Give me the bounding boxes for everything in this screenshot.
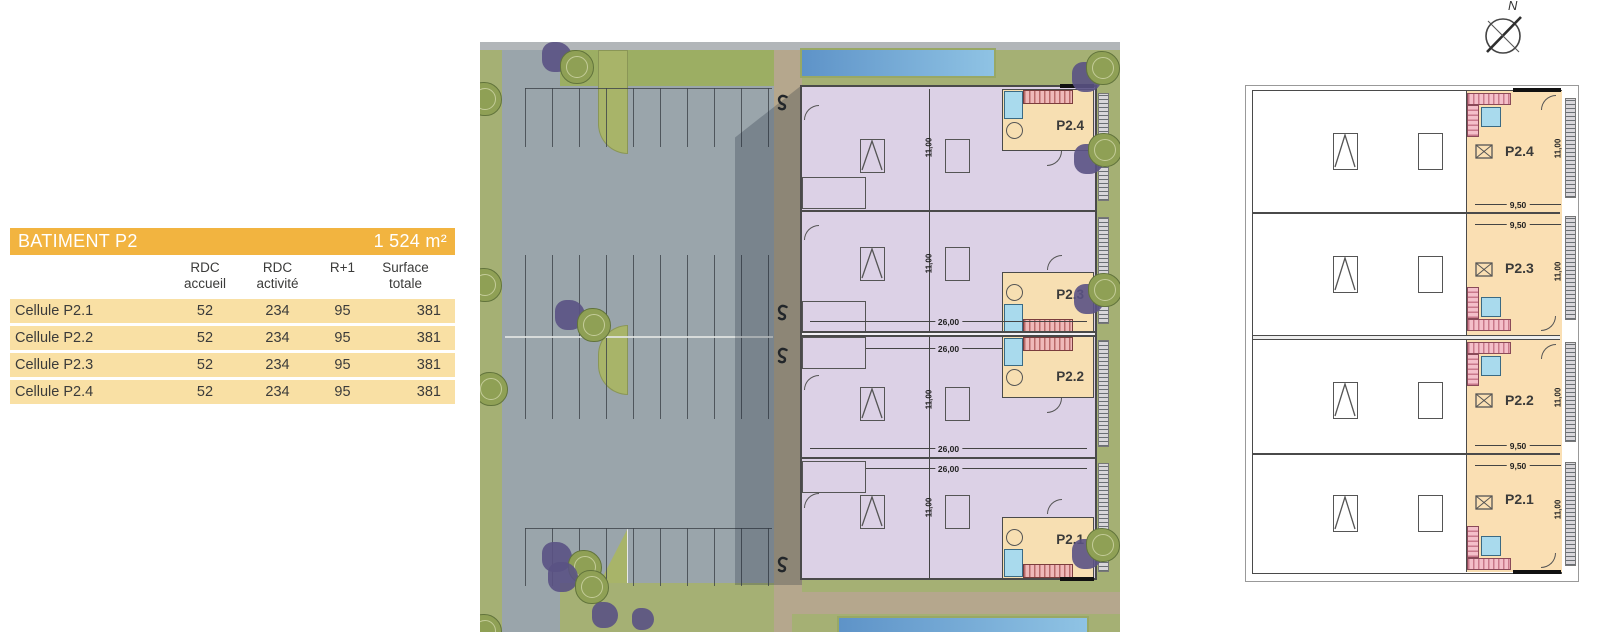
cell-value: 95 (315, 303, 370, 319)
tree-icon (1088, 133, 1120, 167)
staircase (1467, 526, 1515, 570)
louver-strip (1565, 462, 1576, 566)
tree-icon (1086, 528, 1120, 562)
r1-cell-p21: P2.1 11,00 (1253, 455, 1560, 572)
tree-icon (1086, 51, 1120, 85)
total-area: 1 524 m² (374, 231, 447, 252)
wall-segment (1060, 577, 1094, 581)
cell-value: 234 (240, 330, 315, 346)
dimension-label: 11,00 (925, 491, 934, 525)
cell-label: P2.2 (1056, 369, 1084, 384)
sanitary-block (1004, 91, 1023, 119)
dimension-label: 11,00 (1554, 132, 1563, 166)
cell-value: 381 (370, 357, 455, 373)
roof-vent-symbol (860, 387, 885, 421)
dimension-label: 26,00 (935, 317, 962, 327)
tree-icon (577, 308, 611, 342)
sanitary-block (1004, 304, 1023, 332)
cell-value: 381 (370, 384, 455, 400)
skylight-symbol (1418, 133, 1443, 170)
row-label: Cellule P2.3 (10, 357, 170, 373)
north-label: N (1508, 0, 1517, 13)
door-arc (804, 493, 819, 508)
site-cell-p24: 11,00 P2.4 (802, 87, 1095, 211)
site-plan: 11,00 P2.4 11,00 (480, 42, 1120, 632)
door-pictogram (776, 556, 789, 573)
door-arc (1047, 151, 1062, 166)
roof-vent-symbol (860, 139, 885, 173)
dimension-label: 9,50 (1507, 200, 1530, 210)
hatch-symbol (1475, 262, 1493, 277)
spiral-stair (1006, 369, 1023, 386)
skylight-symbol (945, 495, 970, 529)
vestibule-outline (802, 461, 866, 493)
roof-vent-symbol (1333, 382, 1358, 419)
staircase (1023, 337, 1073, 351)
table-column-headers: RDC accueil RDC activité R+1 Surface tot… (10, 255, 455, 296)
dimension-line: 9,50 (1475, 445, 1561, 446)
building-shadow (735, 85, 802, 585)
spiral-stair (1006, 529, 1023, 546)
staircase (1467, 342, 1515, 386)
staircase (1467, 287, 1515, 331)
hatch-symbol (1475, 495, 1493, 510)
accueil-room: P2.2 (1002, 336, 1094, 398)
vestibule-outline (802, 301, 866, 333)
skylight-symbol (945, 139, 970, 173)
cell-value: 381 (370, 303, 455, 319)
building-p2-ground-floor: 11,00 P2.4 11,00 (800, 85, 1097, 580)
spiral-stair (1006, 284, 1023, 301)
cell-value: 52 (170, 357, 240, 373)
staircase (1023, 564, 1073, 578)
cell-value: 234 (240, 357, 315, 373)
r1-cell-p23: P2.3 11,00 (1253, 214, 1560, 335)
louver-strip (1565, 216, 1576, 320)
roof-vent-symbol (860, 247, 885, 281)
door-arc (804, 375, 819, 390)
col-rdc-activite: RDC activité (240, 260, 315, 292)
wall-segment (1513, 88, 1561, 92)
tree-icon (480, 268, 502, 302)
building-title: BATIMENT P2 (18, 231, 138, 252)
footpath (792, 592, 1120, 614)
tree-icon (480, 614, 502, 632)
cell-value: 234 (240, 303, 315, 319)
tree-icon (560, 50, 594, 84)
cell-value: 95 (315, 384, 370, 400)
parking-stalls (525, 337, 772, 419)
cell-value: 95 (315, 357, 370, 373)
door-arc (804, 225, 819, 240)
wall-segment (1513, 570, 1561, 574)
dimension-label: 11,00 (1554, 381, 1563, 415)
door-arc (1541, 553, 1556, 568)
sanitary-block (1481, 536, 1501, 556)
sanitary-block (1481, 356, 1501, 376)
tree-icon (1088, 273, 1120, 307)
cell-value: 52 (170, 303, 240, 319)
tree-icon (480, 82, 502, 116)
surface-table: BATIMENT P2 1 524 m² RDC accueil RDC act… (10, 228, 455, 404)
skylight-symbol (945, 387, 970, 421)
dimension-label: 9,50 (1507, 441, 1530, 451)
cell-value: 381 (370, 330, 455, 346)
table-row: Cellule P2.1 52 234 95 381 (10, 299, 455, 323)
dimension-line: 26,00 (810, 448, 1087, 449)
door-pictogram (776, 304, 789, 321)
floor-plan-r1: P2.4 11,00 9,50 9,50 (1245, 84, 1585, 581)
water-basin (800, 48, 996, 78)
staircase (1467, 93, 1515, 137)
table-row: Cellule P2.2 52 234 95 381 (10, 326, 455, 350)
vestibule-outline (802, 337, 866, 369)
door-arc (1047, 398, 1062, 413)
louver-strip (1565, 98, 1576, 198)
tree-shadow (592, 602, 618, 628)
door-arc (1047, 255, 1062, 270)
dimension-label: 11,00 (1554, 255, 1563, 289)
door-arc (804, 105, 819, 120)
door-pictogram (776, 94, 789, 111)
cell-label: P2.2 (1505, 392, 1534, 408)
hatch-symbol (1475, 393, 1493, 408)
door-arc (1047, 499, 1062, 514)
door-pictogram (776, 347, 789, 364)
col-r1: R+1 (315, 260, 370, 292)
parking-stalls (525, 88, 772, 147)
cell-label: P2.4 (1056, 118, 1084, 133)
sanitary-block (1481, 297, 1501, 317)
door-arc (1541, 316, 1556, 331)
cell-value: 95 (315, 330, 370, 346)
skylight-symbol (1418, 256, 1443, 293)
roof-vent-symbol (1333, 133, 1358, 170)
dimension-label: 11,00 (925, 247, 934, 281)
spiral-stair (1006, 122, 1023, 139)
building-p2-upper-floor: P2.4 11,00 9,50 9,50 (1252, 90, 1562, 574)
site-cell-p21: 11,00 P2.1 (802, 459, 1095, 580)
door-arc (1541, 95, 1556, 110)
dimension-line: 26,00 (810, 321, 1087, 322)
louver-strip (1565, 342, 1576, 442)
door-arc (1541, 344, 1556, 359)
page: BATIMENT P2 1 524 m² RDC accueil RDC act… (0, 0, 1600, 640)
roof-vent-symbol (1333, 495, 1358, 532)
cell-label: P2.4 (1505, 143, 1534, 159)
cell-label: P2.1 (1505, 491, 1534, 507)
table-header: BATIMENT P2 1 524 m² (10, 228, 455, 255)
tree-shadow (632, 608, 654, 630)
table-row: Cellule P2.4 52 234 95 381 (10, 380, 455, 404)
row-label: Cellule P2.2 (10, 330, 170, 346)
road-marking (505, 336, 773, 338)
cell-label: P2.3 (1505, 260, 1534, 276)
sanitary-block (1004, 338, 1023, 366)
water-basin (837, 616, 1089, 632)
sanitary-block (1481, 107, 1501, 127)
cell-value: 52 (170, 330, 240, 346)
staircase (1023, 90, 1073, 104)
site-cell-p22: 11,00 P2.2 (802, 335, 1095, 458)
skylight-symbol (945, 247, 970, 281)
tree-shadow (548, 562, 578, 592)
roof-vent-symbol (1333, 256, 1358, 293)
roof-vent-symbol (860, 495, 885, 529)
hatch-symbol (1475, 144, 1493, 159)
north-compass-icon (1475, 0, 1533, 62)
hedge-strip (560, 50, 792, 86)
skylight-symbol (1418, 382, 1443, 419)
accueil-room: P2.4 (1002, 89, 1094, 151)
table-row: Cellule P2.3 52 234 95 381 (10, 353, 455, 377)
vestibule-outline (802, 177, 866, 209)
row-label: Cellule P2.4 (10, 384, 170, 400)
col-surface-totale: Surface totale (370, 260, 455, 292)
r1-cell-p24: P2.4 11,00 (1253, 91, 1560, 212)
dimension-label: 11,00 (1554, 493, 1563, 527)
skylight-symbol (1418, 495, 1443, 532)
dimension-line: 9,50 (1475, 204, 1561, 205)
dimension-label: 11,00 (925, 131, 934, 165)
dimension-label: 11,00 (925, 383, 934, 417)
cell-value: 234 (240, 384, 315, 400)
tree-icon (575, 570, 609, 604)
row-label: Cellule P2.1 (10, 303, 170, 319)
cell-value: 52 (170, 384, 240, 400)
col-rdc-accueil: RDC accueil (170, 260, 240, 292)
louver-strip (1098, 340, 1109, 447)
sanitary-block (1004, 549, 1023, 577)
dimension-label: 26,00 (935, 444, 962, 454)
